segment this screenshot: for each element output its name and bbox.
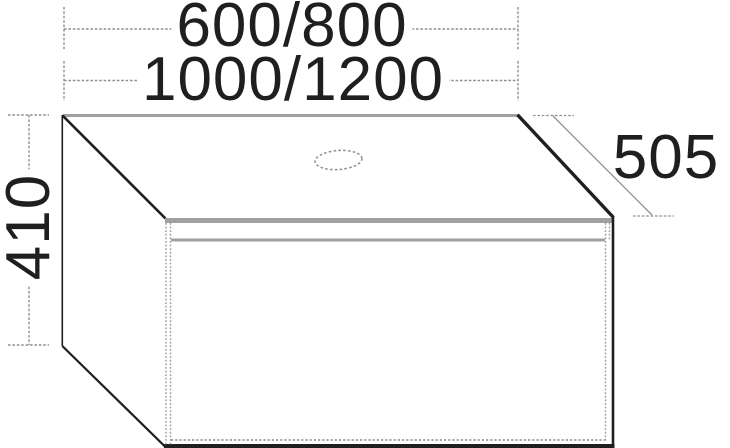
dimension-label-height: 410: [0, 169, 60, 285]
countertop-right-edge: [518, 115, 614, 218]
dimension-label-width-bottom: 1000/1200: [137, 49, 449, 111]
technical-drawing-canvas: 600/800 1000/1200 410 505: [0, 0, 730, 448]
cabinet-body: [62, 115, 614, 448]
countertop: [63, 115, 614, 221]
side-bottom-edge: [62, 346, 166, 448]
drain-hole: [314, 149, 362, 171]
drawer-front: [171, 223, 606, 441]
countertop-left-edge: [63, 116, 166, 219]
dimension-label-depth: 505: [613, 127, 719, 189]
